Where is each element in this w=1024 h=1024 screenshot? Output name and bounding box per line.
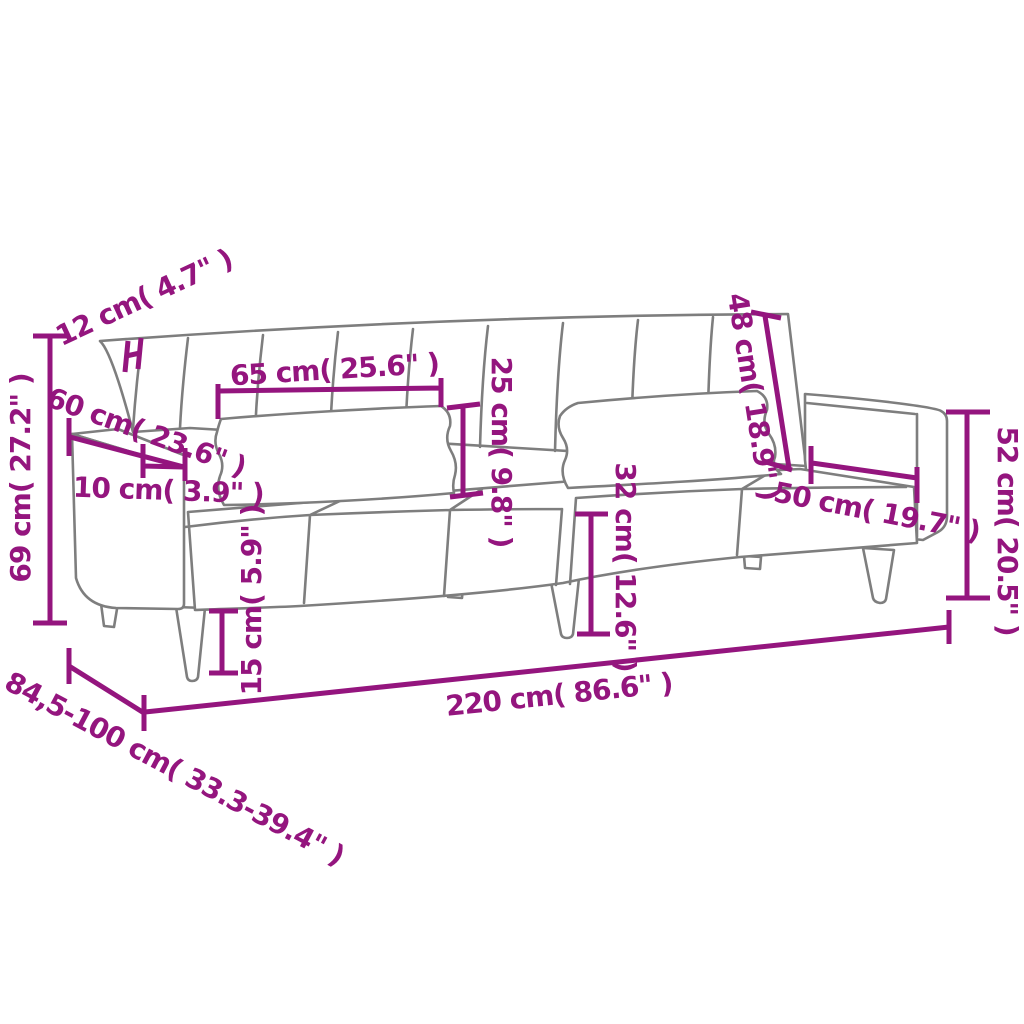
dimension-label: 52 cm( 20.5" ) [991,426,1024,635]
dimension-line [33,336,67,623]
sofa-leg-front-left [176,607,205,681]
diagram-svg: 12 cm( 4.7" ) 69 cm( 27.2" ) 60 cm( 23.6… [0,0,1024,1024]
dimension-overall-height: 69 cm( 27.2" ) [4,336,67,623]
dimension-label: 15 cm( 5.9" ) [235,505,268,696]
dimension-line [209,611,238,673]
sofa-leg-front-right [863,548,894,603]
dimension-label: 69 cm( 27.2" ) [4,373,37,582]
dimension-diagram: 12 cm( 4.7" ) 69 cm( 27.2" ) 60 cm( 23.6… [0,0,1024,1024]
dimension-label: 10 cm( 3.9" ) [72,471,264,511]
dimension-overall-depth: 84,5-100 cm( 33.3-39.4" ) [0,648,350,872]
dimension-label: 25 cm( 9.8" ) [485,357,518,548]
sofa-leg-back-right [744,556,761,569]
dimension-line [946,412,990,598]
sofa-leg-front-middle [550,577,579,638]
dimension-label: 32 cm( 12.6" ) [609,462,642,671]
